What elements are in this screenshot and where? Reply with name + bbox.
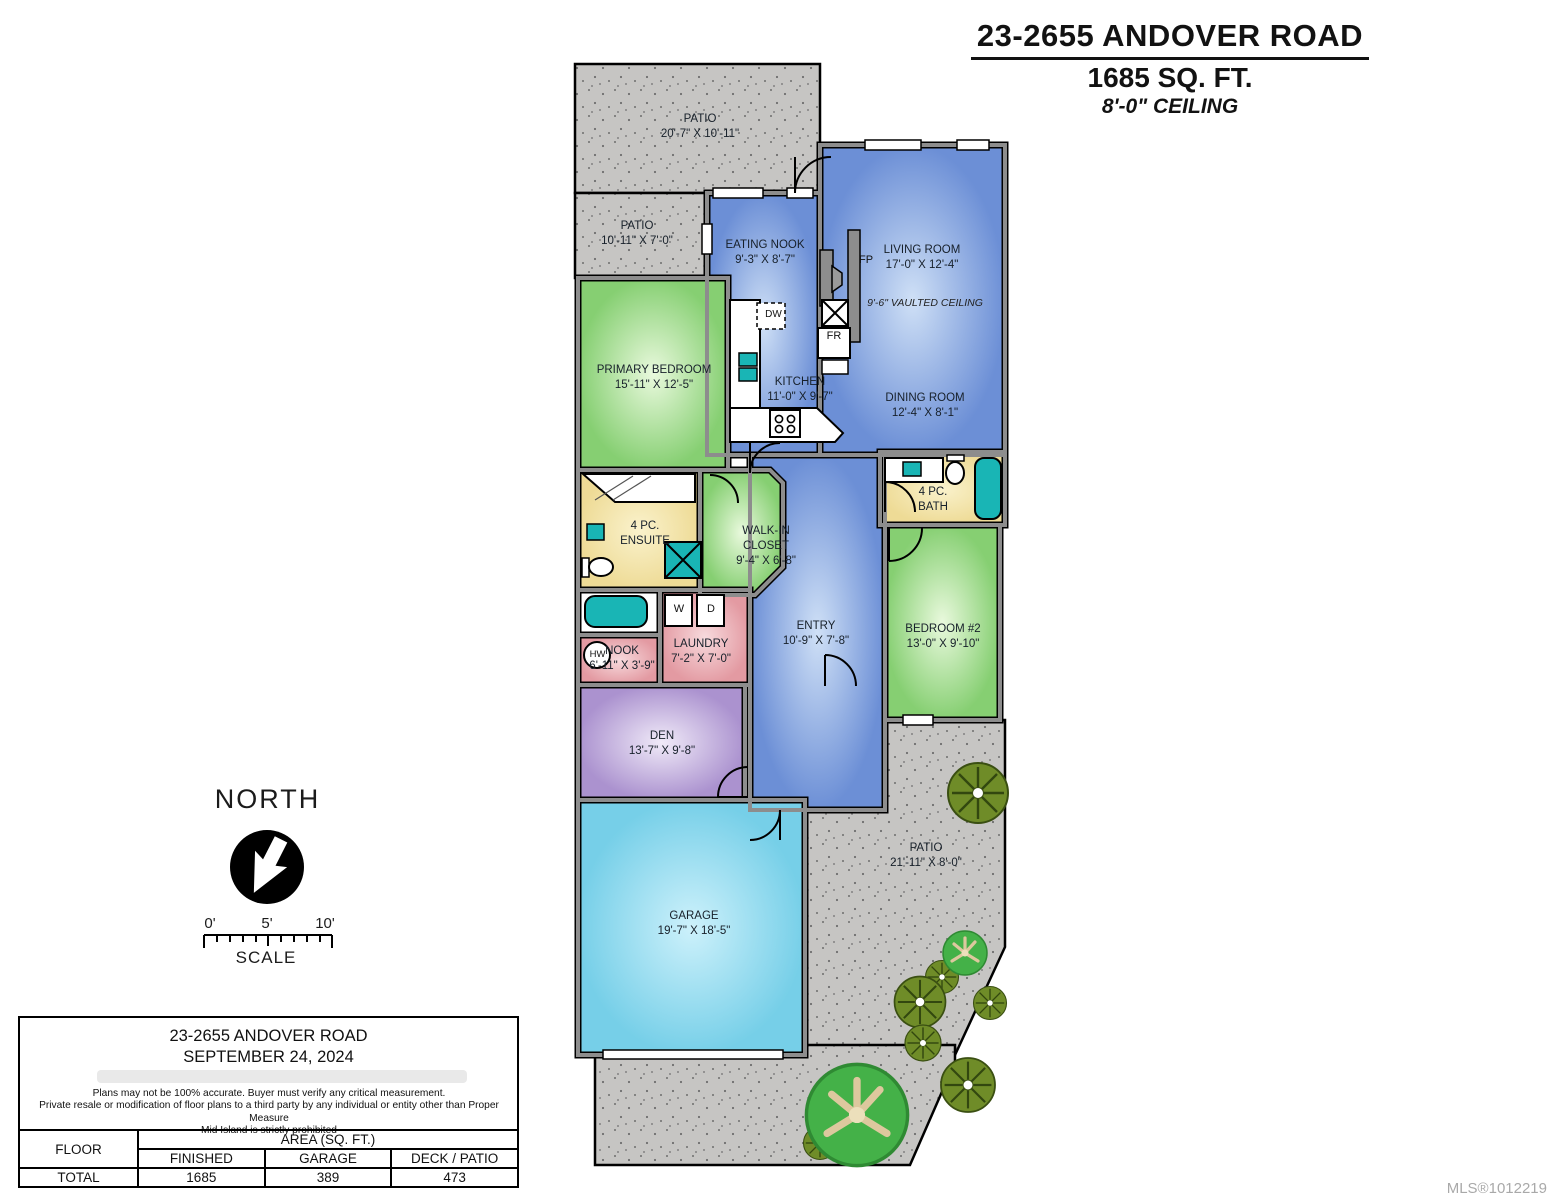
- stove-icon: [770, 410, 800, 437]
- room-label-primary: PRIMARY BEDROOM15'-11" X 12'-5": [564, 363, 744, 393]
- room-label-garage: GARAGE19'-7" X 18'-5": [624, 909, 764, 939]
- fireplace-label: FP: [852, 254, 880, 266]
- room-label-patio-left: PATIO10'-11" X 7'-0": [557, 219, 717, 249]
- footer-address: 23-2655 ANDOVER ROAD: [20, 1027, 517, 1046]
- room-label-bath: 4 PC.BATH: [873, 485, 993, 515]
- table-row: TOTAL 1685 389 473: [19, 1168, 518, 1187]
- footer-info-box: 23-2655 ANDOVER ROAD SEPTEMBER 24, 2024 …: [18, 1016, 519, 1188]
- ensuite-toilet-icon: [589, 558, 613, 576]
- bath-sink-icon: [903, 462, 921, 476]
- north-label: NORTH: [195, 784, 340, 815]
- page-title-area: 1685 SQ. FT.: [950, 62, 1390, 94]
- vaulted-ceiling-note: 9'-6" VAULTED CEILING: [825, 297, 1025, 311]
- dishwasher-label: DW: [758, 309, 789, 320]
- room-label-entry: ENTRY10'-9" X 7'-8": [746, 619, 886, 649]
- table-header-garage: GARAGE: [265, 1149, 392, 1168]
- scale-tick-5: 5': [250, 915, 284, 932]
- table-cell-deck-patio: 473: [391, 1168, 518, 1187]
- mls-watermark: MLS®1012219: [1447, 1180, 1547, 1197]
- title-block: 23-2655 ANDOVER ROAD 1685 SQ. FT. 8'-0" …: [950, 18, 1390, 119]
- north-arrow-icon: [224, 824, 310, 910]
- room-label-patio-top: PATIO20'-7" X 10'-11": [620, 112, 780, 142]
- room-label-patio-right: PATIO21'-11" X 8'-0": [856, 841, 996, 871]
- table-header-finished: FINISHED: [138, 1149, 265, 1168]
- scale-tick-10: 10': [308, 915, 342, 932]
- room-label-eating-nook: EATING NOOK9'-3" X 8'-7": [695, 238, 835, 268]
- bathtub-icon: [585, 596, 647, 627]
- table-header-floor: FLOOR: [19, 1130, 138, 1168]
- hot-water-label: HW: [585, 649, 610, 660]
- table-header-area: AREA (SQ. FT.): [138, 1130, 518, 1149]
- room-label-ensuite: 4 PC.ENSUITE: [585, 519, 705, 549]
- table-cell-total: TOTAL: [19, 1168, 138, 1187]
- footer-date: SEPTEMBER 24, 2024: [20, 1048, 517, 1067]
- page-title-address: 23-2655 ANDOVER ROAD: [971, 18, 1369, 60]
- scale-tick-0: 0': [193, 915, 227, 932]
- area-table: FLOOR AREA (SQ. FT.) FINISHED GARAGE DEC…: [18, 1129, 519, 1188]
- room-label-dining: DINING ROOM12'-4" X 8'-1": [845, 391, 1005, 421]
- page-title-ceiling: 8'-0" CEILING: [950, 95, 1390, 119]
- table-cell-finished: 1685: [138, 1168, 265, 1187]
- room-label-bedroom2: BEDROOM #213'-0" X 9'-10": [873, 622, 1013, 652]
- bath-toilet-icon: [946, 462, 964, 484]
- fridge-label: FR: [819, 330, 849, 342]
- redacted-line: [97, 1070, 467, 1083]
- room-label-walk-in-closet: WALK-INCLOSET9'-4" X 6'-8": [706, 524, 826, 569]
- table-cell-garage: 389: [265, 1168, 392, 1187]
- dryer-label: D: [698, 603, 724, 615]
- room-label-den: DEN13'-7" X 9'-8": [592, 729, 732, 759]
- table-header-deck-patio: DECK / PATIO: [391, 1149, 518, 1168]
- floor-plan-page: 23-2655 ANDOVER ROAD 1685 SQ. FT. 8'-0" …: [0, 0, 1553, 1200]
- scale-label: SCALE: [210, 948, 322, 968]
- washer-label: W: [666, 603, 692, 615]
